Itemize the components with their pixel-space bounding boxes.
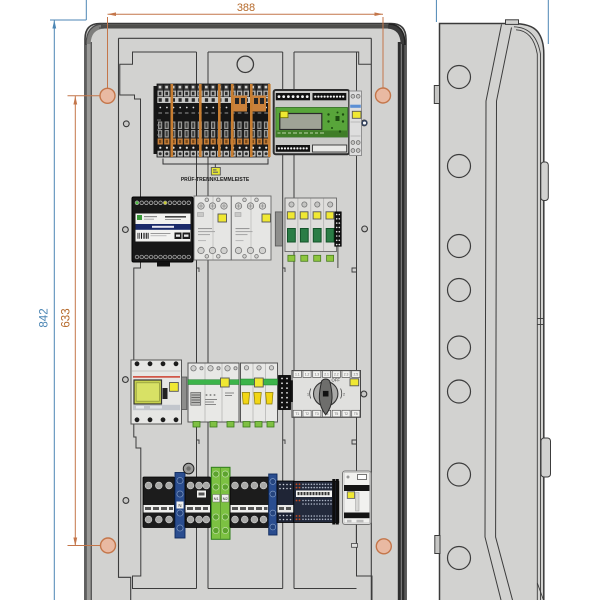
svg-text:1.2: 1.2 xyxy=(305,373,310,377)
svg-text:T2: T2 xyxy=(344,412,348,416)
svg-text:1.1: 1.1 xyxy=(295,373,300,377)
svg-text:1: 1 xyxy=(307,393,309,397)
svg-text:2: 2 xyxy=(343,393,345,397)
svg-text:2.1: 2.1 xyxy=(324,373,329,377)
svg-text:2.5: 2.5 xyxy=(353,373,358,377)
svg-text:N: N xyxy=(178,503,181,508)
svg-text:842: 842 xyxy=(39,308,51,327)
svg-text:2.3: 2.3 xyxy=(344,373,349,377)
svg-text:T2: T2 xyxy=(305,412,309,416)
svg-text:N2: N2 xyxy=(223,496,229,501)
svg-text:PRÜF-TRENNKLEMMLEISTE: PRÜF-TRENNKLEMMLEISTE xyxy=(181,176,250,183)
svg-text:N1: N1 xyxy=(214,496,220,501)
svg-text:T5: T5 xyxy=(354,412,358,416)
svg-text:OFF: OFF xyxy=(332,377,341,382)
svg-text:T5: T5 xyxy=(334,412,338,416)
svg-text:633: 633 xyxy=(61,308,73,327)
svg-text:388: 388 xyxy=(237,2,255,14)
svg-text:T3: T3 xyxy=(315,412,319,416)
svg-text:T1: T1 xyxy=(295,412,299,416)
svg-text:1.3: 1.3 xyxy=(314,373,319,377)
svg-text:2.2: 2.2 xyxy=(334,373,339,377)
